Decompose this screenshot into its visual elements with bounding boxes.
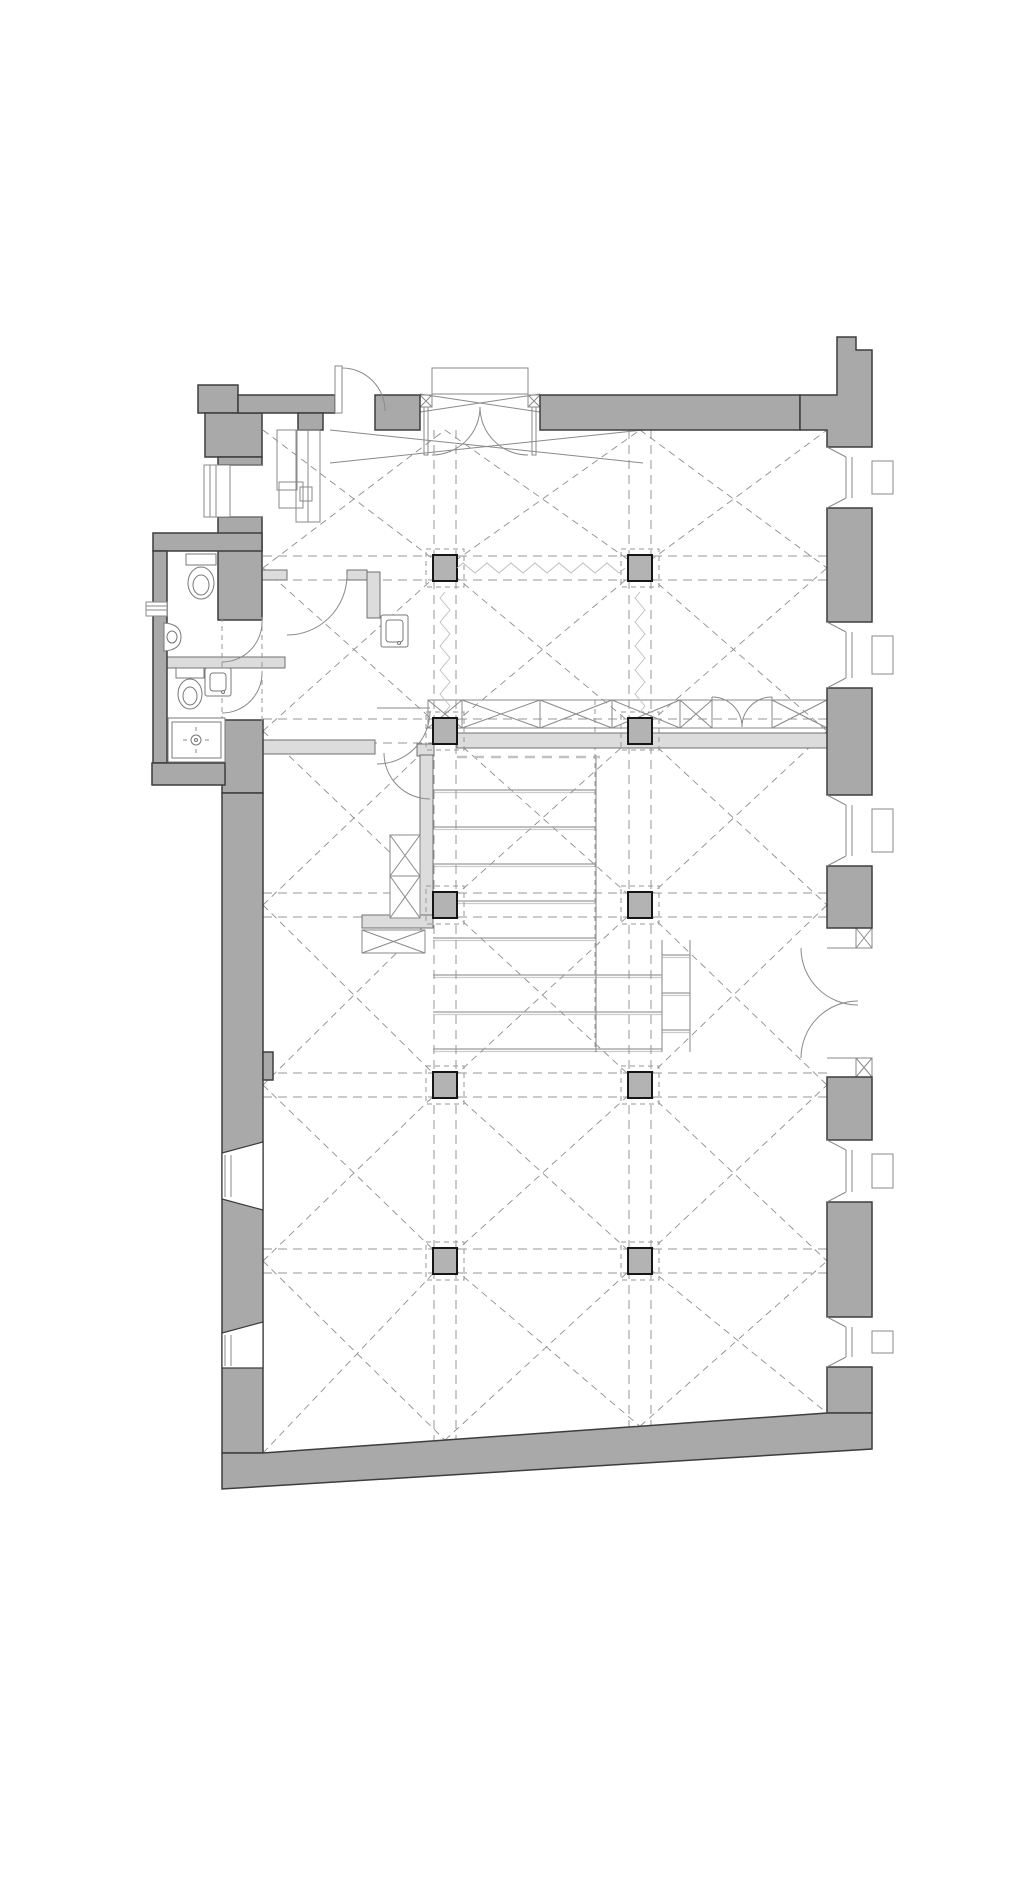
annex-vent [146, 602, 167, 616]
mezzanine-railing-double-door [712, 697, 772, 727]
window-right-5 [827, 1317, 893, 1367]
column [628, 892, 652, 918]
column [628, 1072, 652, 1098]
entrance-post-right [528, 395, 540, 407]
washbasin-wc-symbol [205, 668, 231, 696]
outer-walls [152, 337, 872, 1489]
right-wall [827, 508, 872, 622]
toilet-symbol-lower [176, 668, 204, 709]
columns [426, 549, 659, 1280]
window-right-4 [827, 1140, 893, 1202]
column [628, 1248, 652, 1274]
beam-wave-symbols [440, 563, 645, 712]
column [628, 718, 652, 744]
grid-projection-dashes [263, 430, 827, 1441]
interior-partitions [167, 570, 827, 928]
column [433, 892, 457, 918]
entrance-lintel [432, 368, 528, 394]
annex-left-wall [153, 551, 167, 763]
column [433, 1072, 457, 1098]
left-wall-pilaster [263, 1052, 273, 1080]
side-double-door [801, 948, 872, 1058]
shelf [277, 430, 297, 490]
floor-plan-page [0, 0, 1026, 1878]
annex-bottom-wall [152, 763, 225, 785]
shaft-box [390, 835, 420, 918]
window-right-2 [827, 622, 893, 688]
top-left-pier [198, 385, 238, 413]
stair-bottom-brace [362, 930, 425, 953]
window-niche-left-1 [222, 1142, 263, 1210]
window-right-1 [827, 447, 893, 508]
window-left-upper [204, 465, 262, 517]
urinal-symbol [164, 623, 181, 651]
vestibule-ceiling-x [330, 430, 643, 463]
top-right-pier [800, 337, 872, 447]
column [433, 1248, 457, 1274]
side-door-post-top [856, 928, 872, 948]
annex-top-wall [153, 533, 262, 551]
washbasin-lobby-symbol [381, 615, 408, 647]
top-wall [238, 395, 335, 413]
furniture [277, 430, 320, 522]
toilet-symbol-upper [186, 554, 216, 599]
vault-diagonal-projections [263, 430, 827, 1453]
column [433, 555, 457, 581]
bottom-wall [222, 1413, 872, 1489]
column [628, 555, 652, 581]
side-door-post-bottom [856, 1058, 872, 1077]
wc-door-1 [222, 622, 262, 662]
entrance-post-left [420, 395, 432, 407]
window-right-3 [827, 795, 893, 866]
shower-tray-symbol [168, 718, 225, 762]
column [433, 718, 457, 744]
desk [279, 482, 303, 508]
chair [300, 487, 312, 501]
lobby-room-door [287, 575, 347, 635]
floor-plan-drawing [0, 0, 1026, 1878]
